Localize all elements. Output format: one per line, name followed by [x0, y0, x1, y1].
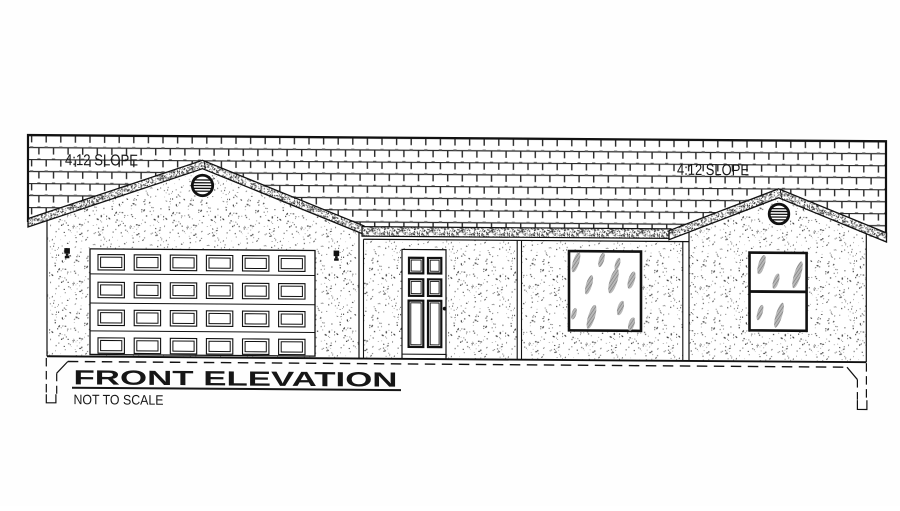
svg-text:4:12 SLOPE: 4:12 SLOPE — [677, 162, 749, 180]
svg-text:4:12 SLOPE: 4:12 SLOPE — [65, 152, 138, 170]
svg-text:NOT TO SCALE: NOT TO SCALE — [74, 392, 164, 408]
